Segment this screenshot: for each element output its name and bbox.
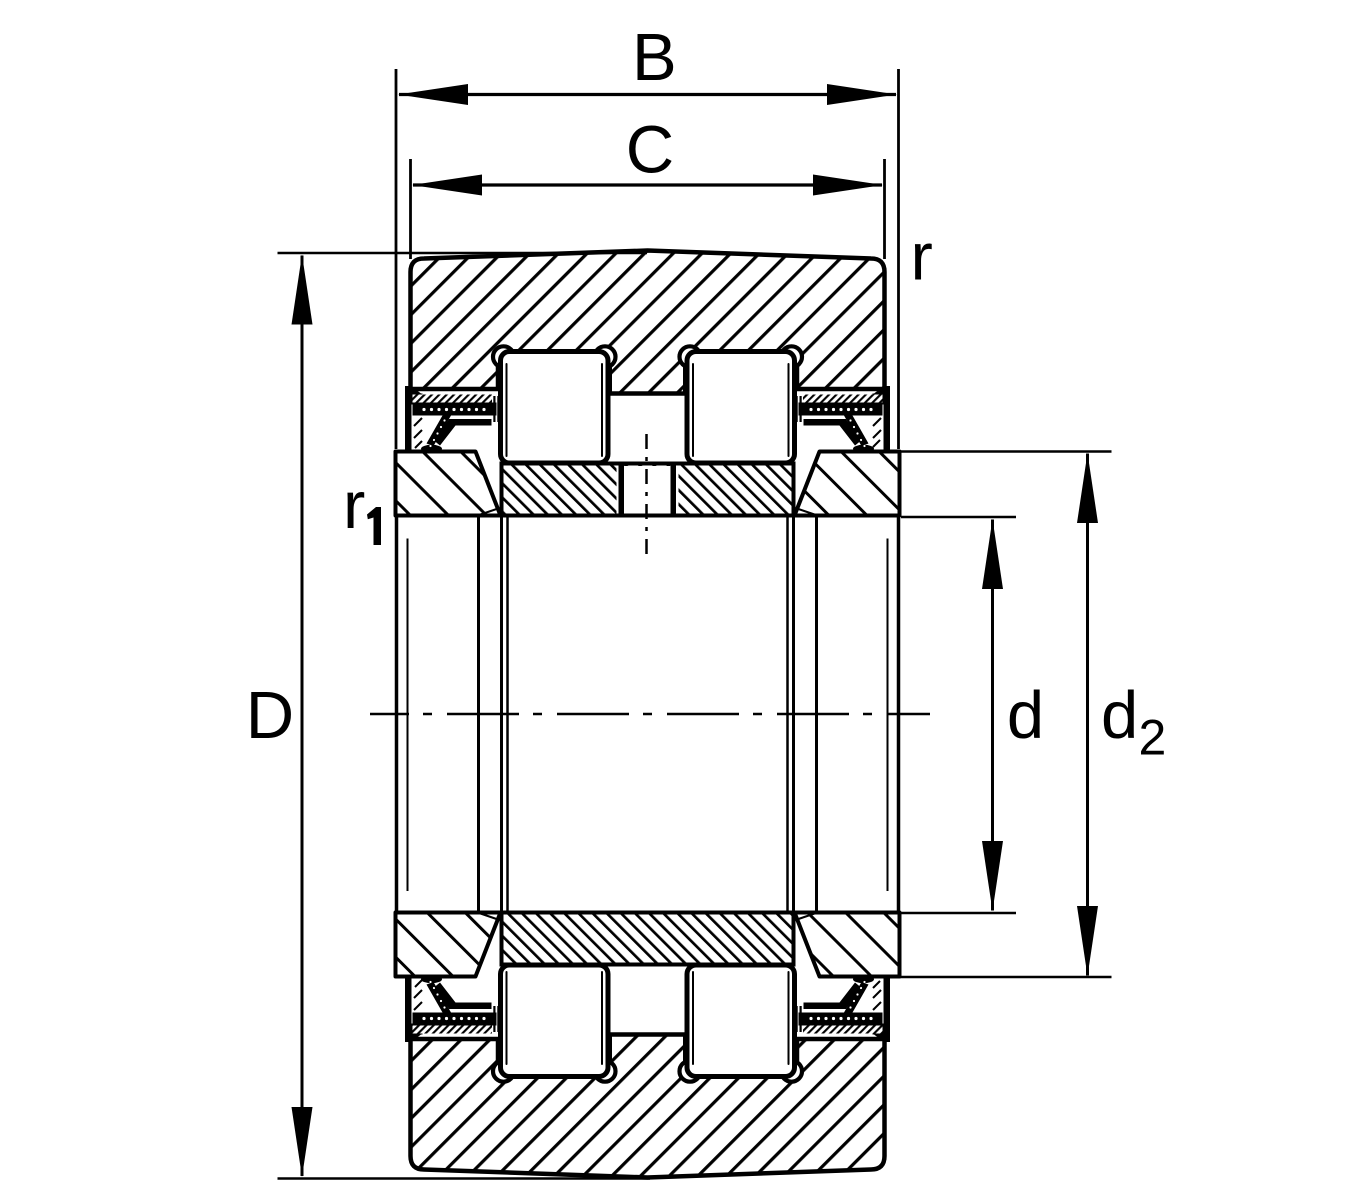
svg-text:d: d <box>1007 678 1044 753</box>
svg-text:2: 2 <box>1139 710 1167 766</box>
svg-text:C: C <box>626 113 674 188</box>
svg-text:D: D <box>246 678 294 753</box>
svg-text:d: d <box>1101 678 1138 753</box>
svg-text:B: B <box>632 20 677 95</box>
svg-text:r: r <box>343 468 365 543</box>
svg-text:r: r <box>911 220 933 295</box>
